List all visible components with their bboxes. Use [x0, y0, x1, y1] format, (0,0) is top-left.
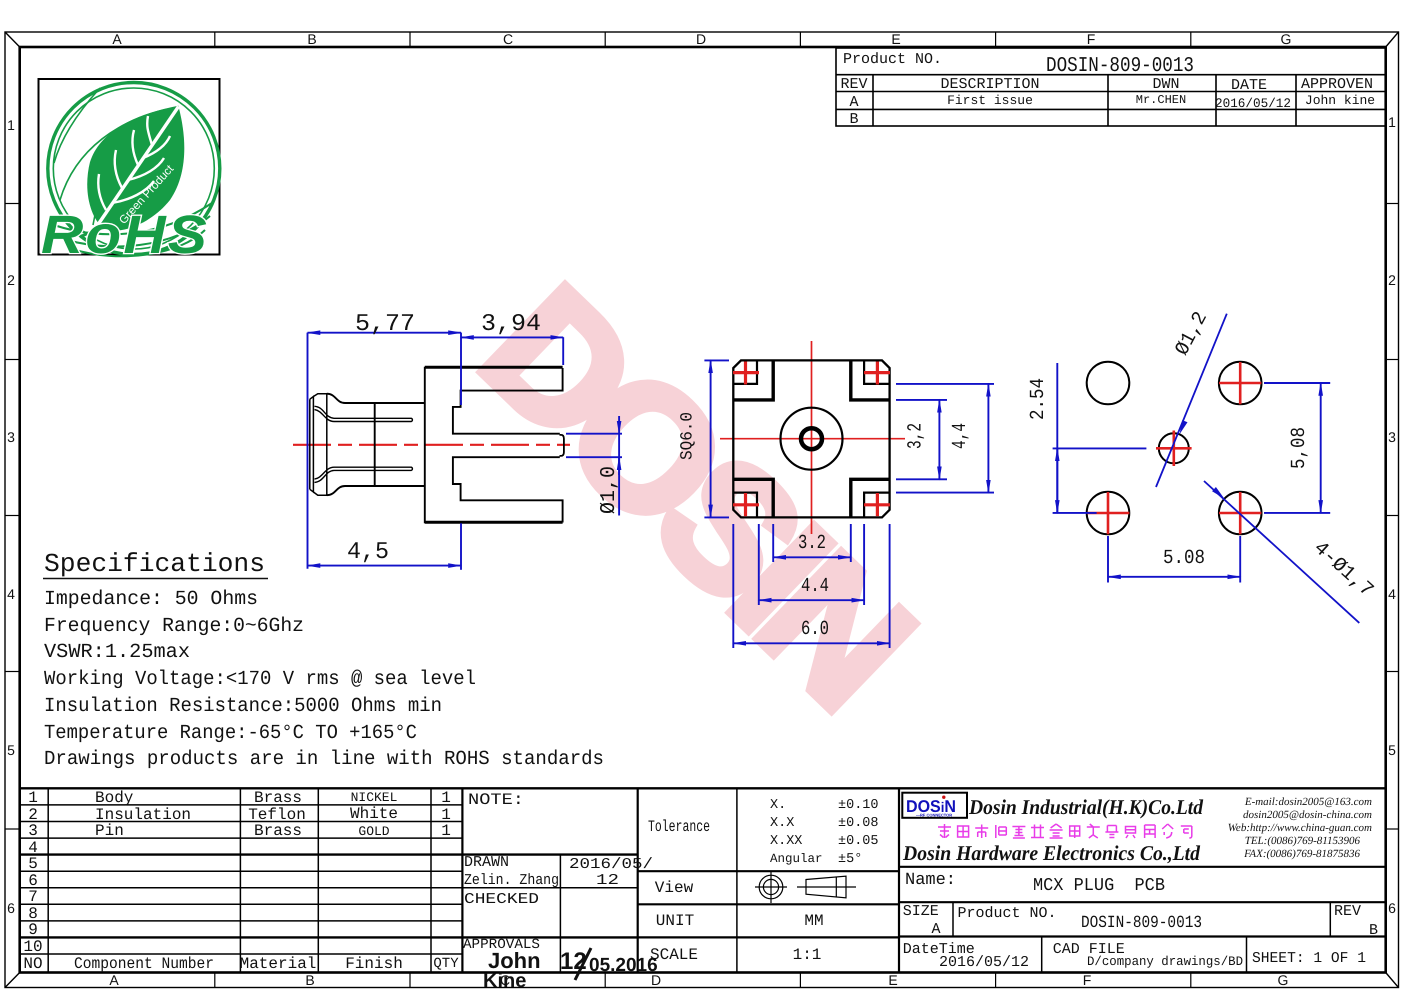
- svg-text:1:1: 1:1: [793, 946, 822, 964]
- svg-text:E: E: [891, 31, 900, 47]
- svg-text:2: 2: [7, 272, 15, 288]
- svg-text:John kine: John kine: [1305, 93, 1375, 108]
- svg-text:1: 1: [1388, 114, 1396, 130]
- svg-text:A: A: [849, 94, 858, 111]
- svg-text:F: F: [1087, 31, 1096, 47]
- svg-text:White: White: [350, 805, 398, 823]
- svg-text:12: 12: [596, 872, 619, 889]
- svg-text:—RF CONNECTOR: —RF CONNECTOR: [916, 813, 952, 818]
- svg-text:D: D: [696, 31, 706, 47]
- svg-text:DOSIN-809-0013: DOSIN-809-0013: [1081, 914, 1202, 933]
- svg-text:X.XX: X.XX: [770, 834, 802, 849]
- svg-text:B: B: [849, 111, 858, 128]
- svg-text:Tolerance: Tolerance: [648, 818, 710, 836]
- svg-text:REV: REV: [840, 76, 867, 93]
- svg-text:5,08: 5,08: [1288, 427, 1311, 469]
- svg-text:MCX PLUG PCB: MCX PLUG PCB: [1033, 876, 1165, 896]
- svg-text:C: C: [503, 31, 513, 47]
- svg-text:4-Ø1,7: 4-Ø1,7: [1309, 537, 1378, 602]
- svg-text:QTY: QTY: [433, 956, 459, 972]
- svg-text:SCALE: SCALE: [650, 946, 698, 964]
- svg-text:Dosin Industrial(H.K)Co.Ltd: Dosin Industrial(H.K)Co.Ltd: [968, 795, 1203, 819]
- svg-text:3: 3: [1388, 429, 1396, 445]
- svg-text:Finish: Finish: [345, 955, 403, 973]
- svg-text:Dosin Hardware Electronics Co.: Dosin Hardware Electronics Co.,Ltd: [902, 841, 1200, 865]
- svg-text:DOSIN-809-0013: DOSIN-809-0013: [1046, 55, 1194, 78]
- svg-text:Temperature Range:-65°C TO +16: Temperature Range:-65°C TO +165°C: [44, 722, 417, 745]
- svg-text:1: 1: [7, 117, 15, 133]
- svg-text:Web:http://www.china-guan.com: Web:http://www.china-guan.com: [1228, 822, 1372, 834]
- svg-text:6: 6: [7, 900, 15, 916]
- svg-text:DESCRIPTION: DESCRIPTION: [940, 76, 1039, 93]
- svg-text:2.54: 2.54: [1027, 378, 1050, 420]
- svg-text:G: G: [1281, 31, 1292, 47]
- svg-text:4: 4: [7, 586, 15, 602]
- svg-text:MM: MM: [804, 912, 823, 930]
- svg-text:1: 1: [28, 789, 38, 807]
- svg-text:SIZE: SIZE: [903, 903, 939, 920]
- svg-text:D/company drawings/BD: D/company drawings/BD: [1087, 954, 1243, 969]
- svg-text:Product NO.: Product NO.: [843, 51, 942, 68]
- svg-text:Impedance: 50 Ohms: Impedance: 50 Ohms: [44, 588, 258, 611]
- svg-text:2016/05/12: 2016/05/12: [1215, 96, 1291, 111]
- svg-text:Component Number: Component Number: [74, 955, 214, 973]
- svg-text:F: F: [1083, 972, 1092, 988]
- svg-text:7: 7: [28, 888, 38, 906]
- svg-text:5.08: 5.08: [1163, 547, 1205, 570]
- svg-text:3: 3: [28, 822, 38, 840]
- svg-text:Kine: Kine: [483, 970, 526, 992]
- svg-text:5,77: 5,77: [355, 311, 415, 338]
- svg-text:Brass: Brass: [254, 822, 302, 840]
- svg-text:NICKEL: NICKEL: [351, 790, 398, 805]
- svg-text:X.: X.: [770, 798, 786, 813]
- svg-text:DWN: DWN: [1152, 76, 1179, 93]
- svg-text:NOTE:: NOTE:: [468, 791, 524, 809]
- svg-text:Product NO.: Product NO.: [958, 905, 1057, 922]
- svg-text:4,4: 4,4: [949, 423, 972, 449]
- svg-text:Frequency Range:0~6Ghz: Frequency Range:0~6Ghz: [44, 615, 304, 638]
- svg-text:±0.05: ±0.05: [838, 834, 879, 849]
- svg-text:Pin: Pin: [95, 822, 124, 840]
- svg-text:A: A: [112, 31, 122, 47]
- svg-text:Name:: Name:: [905, 871, 956, 890]
- svg-text:4: 4: [1388, 586, 1396, 602]
- svg-text:B: B: [1369, 922, 1378, 939]
- svg-text:1: 1: [441, 789, 451, 807]
- svg-text:Drawings products are in line: Drawings products are in line with ROHS …: [44, 748, 604, 771]
- svg-text:REV: REV: [1334, 903, 1361, 920]
- svg-text:3,94: 3,94: [481, 311, 541, 338]
- svg-text:±0.08: ±0.08: [838, 816, 879, 831]
- svg-text:Angular: Angular: [770, 852, 823, 866]
- svg-text:2016/05/12: 2016/05/12: [939, 954, 1029, 971]
- svg-text:B: B: [305, 972, 314, 988]
- svg-text:4.4: 4.4: [801, 575, 829, 598]
- svg-text:Material: Material: [240, 955, 317, 973]
- svg-text:2016/05/: 2016/05/: [569, 856, 653, 873]
- svg-text:4,5: 4,5: [347, 539, 389, 566]
- svg-text:Brass: Brass: [254, 789, 302, 807]
- svg-text:±5°: ±5°: [838, 852, 862, 867]
- svg-text:5: 5: [28, 855, 38, 873]
- svg-text:Body: Body: [95, 789, 134, 807]
- svg-text:Ø1,0: Ø1,0: [598, 466, 621, 514]
- svg-text:First issue: First issue: [947, 93, 1033, 108]
- svg-text:5: 5: [7, 742, 15, 758]
- svg-text:Mr.CHEN: Mr.CHEN: [1136, 93, 1186, 107]
- svg-text:VSWR:1.25max: VSWR:1.25max: [44, 641, 190, 664]
- svg-text:6: 6: [1388, 900, 1396, 916]
- svg-text:05.2016: 05.2016: [589, 955, 658, 976]
- svg-text:NO: NO: [23, 955, 42, 973]
- svg-text:X.X: X.X: [770, 816, 794, 831]
- svg-text:5: 5: [1388, 742, 1396, 758]
- svg-text:B: B: [307, 31, 316, 47]
- svg-text:3: 3: [7, 429, 15, 445]
- svg-text:E: E: [888, 972, 897, 988]
- svg-text:10: 10: [23, 938, 42, 956]
- svg-text:dosin2005@dosin-china.com: dosin2005@dosin-china.com: [1243, 809, 1372, 821]
- svg-text:1: 1: [441, 822, 451, 840]
- svg-text:A: A: [931, 921, 940, 938]
- svg-text:6.0: 6.0: [801, 618, 829, 641]
- svg-text:2: 2: [1388, 272, 1396, 288]
- svg-text:Working Voltage:<170 V rms @ s: Working Voltage:<170 V rms @ sea level: [44, 668, 476, 691]
- svg-text:Specifications: Specifications: [44, 549, 265, 579]
- svg-text:SHEET: 1 OF 1: SHEET: 1 OF 1: [1252, 950, 1366, 967]
- svg-text:Ø1,2: Ø1,2: [1171, 308, 1213, 359]
- svg-text:View: View: [655, 879, 694, 897]
- svg-text:DATE: DATE: [1231, 77, 1267, 94]
- svg-text:APPROVEN: APPROVEN: [1301, 76, 1373, 93]
- svg-text:E-mail:dosin2005@163.com: E-mail:dosin2005@163.com: [1244, 796, 1372, 808]
- svg-text:G: G: [1278, 972, 1289, 988]
- svg-text:RoHS: RoHS: [41, 205, 209, 265]
- svg-text:DRAWN: DRAWN: [464, 854, 509, 871]
- svg-text:Insulation Resistance:5000 Ohm: Insulation Resistance:5000 Ohms min: [44, 695, 442, 718]
- svg-text:UNIT: UNIT: [656, 912, 694, 930]
- svg-text:Zelin. Zhang: Zelin. Zhang: [464, 872, 559, 889]
- svg-text:9: 9: [28, 921, 38, 939]
- svg-text:SQ6.0: SQ6.0: [679, 412, 698, 460]
- svg-text:GOLD: GOLD: [358, 824, 389, 839]
- svg-text:FAX:(0086)769-81875836: FAX:(0086)769-81875836: [1243, 848, 1360, 860]
- svg-text:TEL:(0086)769-81153906: TEL:(0086)769-81153906: [1245, 835, 1361, 847]
- svg-text:3.2: 3.2: [798, 532, 826, 555]
- svg-text:3,2: 3,2: [905, 423, 928, 449]
- svg-text:±0.10: ±0.10: [838, 798, 879, 813]
- svg-text:CHECKED: CHECKED: [464, 891, 539, 908]
- svg-text:A: A: [109, 972, 119, 988]
